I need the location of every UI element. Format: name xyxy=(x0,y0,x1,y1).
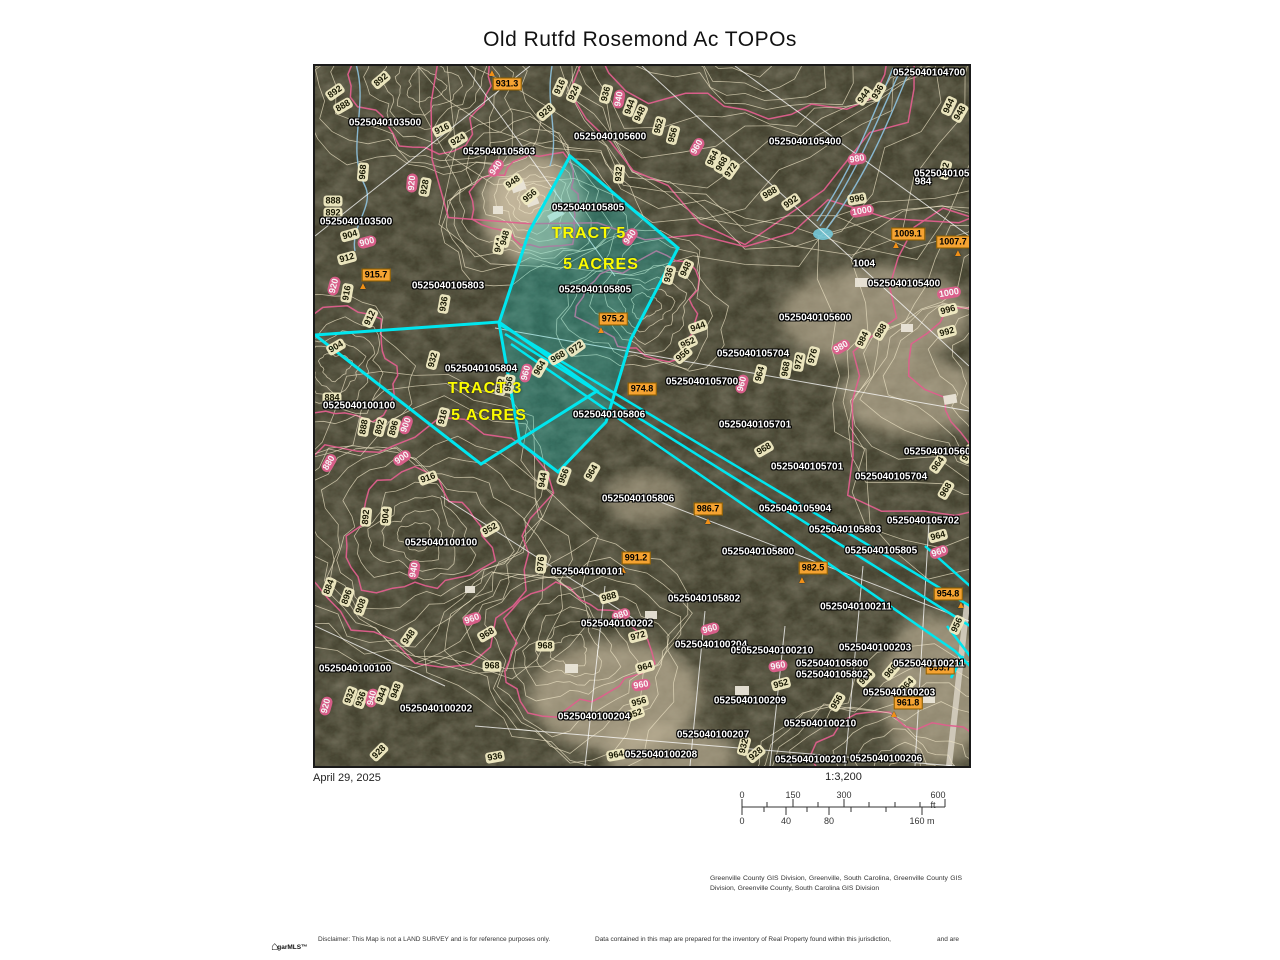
parcel-id-label: 0525040105701 xyxy=(719,420,791,431)
contour-label: 956 xyxy=(827,691,846,713)
parcel-id-label: 0525040105704 xyxy=(717,349,789,360)
contour-index-label: 980 xyxy=(847,152,868,166)
contour-label: 916 xyxy=(431,120,453,138)
contour-label: 956 xyxy=(665,124,681,145)
contour-label: 988 xyxy=(759,183,781,202)
spot-elevation-marker-icon: ▲ xyxy=(596,327,606,335)
contour-index-label: 960 xyxy=(687,136,706,158)
contour-label: 936 xyxy=(598,83,614,104)
contour-index-label: 880 xyxy=(319,452,338,474)
contour-index-label: 960 xyxy=(928,544,950,561)
spot-elevation-label: 915.7 xyxy=(362,269,391,282)
contour-label: 888 xyxy=(357,417,371,438)
disclaimer-part-3: and are xyxy=(937,936,959,943)
contour-label: 892 xyxy=(372,416,388,437)
contour-label: 948 xyxy=(388,680,405,702)
parcel-id-label: 0525040105702 xyxy=(887,516,959,527)
parcel-id-label: 0525040105803 xyxy=(809,525,881,536)
contour-label: 964 xyxy=(634,659,655,675)
parcel-id-label: 0525040100211 xyxy=(820,602,892,613)
contour-label: 916 xyxy=(417,470,439,487)
parcel-id-label: 0525040105600 xyxy=(779,313,851,324)
contour-label: 952 xyxy=(770,676,791,692)
parcel-id-label: 0525040105806 xyxy=(602,494,674,505)
scale-tick-label: 600 ft xyxy=(930,790,945,810)
contour-label: 936 xyxy=(485,750,506,764)
scale-tick-label: 160 m xyxy=(909,816,934,826)
parcel-id-label: 0525040105904 xyxy=(759,504,831,515)
contour-index-label: 960 xyxy=(461,611,483,628)
tract-label: TRACT 5 xyxy=(552,225,627,243)
contour-label: 956 xyxy=(556,465,573,487)
parcel-id-label: 0525040105802 xyxy=(668,594,740,605)
parcel-id-label: 0525040100209 xyxy=(714,696,786,707)
spot-elevation-marker-icon: ▲ xyxy=(487,70,497,78)
topo-report-page: Old Rutfd Rosemond Ac TOPOs 892892888916… xyxy=(0,0,1280,960)
parcel-id-label: 0525040105800 xyxy=(722,547,794,558)
contour-label: 988 xyxy=(871,320,890,342)
contour-label: 944 xyxy=(536,470,550,491)
contour-label: 948 xyxy=(399,626,419,648)
contour-label: 952 xyxy=(479,519,501,538)
parcel-id-label: 0525040100210 xyxy=(741,646,813,657)
contour-label: 996 xyxy=(937,302,958,318)
tract-label: TRACT 3 xyxy=(448,380,523,398)
parcel-id-label: 0525040104700 xyxy=(893,68,965,79)
mls-logo: ⌂ garMLS™ xyxy=(271,941,308,951)
tract-label: 5 ACRES xyxy=(451,407,527,425)
spot-elevation-marker-icon: ▲ xyxy=(797,577,807,585)
contour-label: 972 xyxy=(627,628,648,644)
map-date: April 29, 2025 xyxy=(313,772,381,784)
contour-label: 948 xyxy=(502,172,524,192)
contour-label: 932 xyxy=(425,349,441,370)
contour-label: 884 xyxy=(321,576,338,598)
contour-index-label: 1000 xyxy=(849,203,875,218)
scale-tick-label: 150 xyxy=(785,790,800,800)
parcel-id-label: 0525040105800 xyxy=(796,659,868,670)
scale-tick-label: 0 xyxy=(739,790,744,800)
contour-label: 984 xyxy=(854,328,872,350)
contour-label: 904 xyxy=(325,337,347,356)
parcel-id-label: 0525040100210 xyxy=(784,719,856,730)
contour-index-label: 940 xyxy=(486,157,506,179)
contour-index-label: 960 xyxy=(768,659,789,673)
parcel-id-label: 0525040100202 xyxy=(581,619,653,630)
contour-index-label: 940 xyxy=(407,560,421,581)
contour-label: 968 xyxy=(779,359,793,380)
contour-label: 928 xyxy=(535,102,557,123)
contour-index-label: 920 xyxy=(406,173,419,193)
contour-index-label: 960 xyxy=(699,621,720,637)
contour-label: 964 xyxy=(582,461,601,483)
parcel-id-label: 0525040105400 xyxy=(769,137,841,148)
contour-label: 932 xyxy=(613,164,626,184)
spot-elevation-label: 986.7 xyxy=(694,503,723,516)
contour-label: 948 xyxy=(677,258,695,280)
contour-label: 928 xyxy=(368,741,389,762)
contour-label: 976 xyxy=(535,554,548,574)
contour-label: 892 xyxy=(360,507,373,527)
parcel-id-label: 0525040100100 xyxy=(405,538,477,549)
parcel-id-label: 0525040105805 xyxy=(559,285,631,296)
tract-label: 5 ACRES xyxy=(563,256,639,274)
contour-label: 896 xyxy=(339,586,356,608)
scale-bar: 0150300600 ft 04080160 m xyxy=(740,790,952,834)
contour-label: 912 xyxy=(361,307,379,329)
spot-elevation-label: 1009.1 xyxy=(891,228,925,241)
contour-label: 948 xyxy=(497,227,513,248)
contour-label: 968 xyxy=(936,479,955,501)
contour-label: 976 xyxy=(805,345,821,366)
gis-attribution: Greenville County GIS Division, Greenvil… xyxy=(710,874,962,893)
parcel-id-label: 0525040100202 xyxy=(400,704,472,715)
contour-index-label: 920 xyxy=(318,695,334,716)
parcel-id-label: 0525040105700 xyxy=(666,377,738,388)
parcel-id-label: 0525040100207 xyxy=(677,730,749,741)
spot-elevation-marker-icon: ▲ xyxy=(889,711,899,719)
spot-elevation-marker-icon: ▲ xyxy=(953,250,963,258)
map-labels-layer: 8928928889169249409489289209688888929049… xyxy=(315,66,969,766)
scale-ratio: 1:3,200 xyxy=(742,771,945,783)
parcel-id-label: 0525040100201 xyxy=(775,755,847,766)
contour-label: 916 xyxy=(435,406,451,427)
contour-index-label: 980 xyxy=(830,337,852,356)
contour-label: 968 xyxy=(476,624,498,643)
spot-elevation-label: 975.2 xyxy=(599,313,628,326)
contour-label: 992 xyxy=(780,192,802,212)
contour-index-label: 960 xyxy=(631,678,652,692)
parcel-id-label: 0525040105804 xyxy=(445,364,517,375)
contour-index-label: 920 xyxy=(326,275,342,296)
parcel-id-label: 0525040105600 xyxy=(574,132,646,143)
contour-label: 924 xyxy=(565,82,583,104)
mls-logo-text: garMLS™ xyxy=(277,944,307,951)
contour-index-label: 900 xyxy=(391,448,413,468)
parcel-id-label: 0525040105701 xyxy=(771,462,843,473)
page-title: Old Rutfd Rosemond Ac TOPOs xyxy=(0,28,1280,52)
parcel-id-label: 0525040100100 xyxy=(319,664,391,675)
parcel-id-label: 0525040103500 xyxy=(320,217,392,228)
parcel-id-label: 0525040105400 xyxy=(868,279,940,290)
spot-elevation-marker-icon: ▲ xyxy=(358,283,368,291)
contour-label: 968 xyxy=(482,661,501,672)
contour-label: 968 xyxy=(753,439,775,458)
parcel-id-label: 0525040100100 xyxy=(323,401,395,412)
contour-label: 964 xyxy=(752,363,768,384)
parcel-id-label: 0525040105805 xyxy=(552,203,624,214)
spot-elevation-marker-icon: ▲ xyxy=(703,518,713,526)
parcel-id-label: 0525040100204 xyxy=(558,712,630,723)
contour-label: 992 xyxy=(936,324,957,340)
contour-label: 956 xyxy=(519,186,541,207)
contour-label: 904 xyxy=(380,506,393,526)
contour-label: 964 xyxy=(927,528,948,544)
parcel-id-label: 0525040100203 xyxy=(839,643,911,654)
spot-elevation-label: 991.2 xyxy=(622,552,651,565)
parcel-id-label: 0525040105802 xyxy=(796,670,868,681)
parcel-id-label: 0525040105704 xyxy=(855,472,927,483)
disclaimer-part-2: Data contained in this map are prepared … xyxy=(595,936,891,943)
scale-tick-label: 0 xyxy=(739,816,744,826)
contour-label: 936 xyxy=(437,294,451,315)
scale-tick-label: 40 xyxy=(781,816,791,826)
spot-elevation-marker-icon: ▲ xyxy=(891,242,901,250)
parcel-id-label: 0525040105600 xyxy=(904,447,971,458)
parcel-id-label: 0525040100101 xyxy=(551,567,623,578)
spot-elevation-label: 974.8 xyxy=(628,383,657,396)
contour-label: 936 xyxy=(661,264,677,285)
spot-elevation-label: 982.5 xyxy=(799,562,828,575)
contour-label: 928 xyxy=(418,177,432,198)
contour-label: 944 xyxy=(687,319,709,336)
contour-label: 964 xyxy=(530,357,549,379)
parcel-id-label: 0525040100211 xyxy=(893,659,965,670)
parcel-id-label: 984 xyxy=(915,177,932,188)
contour-label: 968 xyxy=(357,162,370,182)
spot-elevation-marker-icon: ▲ xyxy=(956,602,966,610)
parcel-id-label: 0525040105803 xyxy=(463,147,535,158)
contour-label: 988 xyxy=(598,589,619,605)
parcel-id-label: 0525040100208 xyxy=(625,750,697,761)
contour-label: 912 xyxy=(336,250,357,266)
parcel-id-label: 0525040100203 xyxy=(863,688,935,699)
parcel-id-label: 0525040100206 xyxy=(850,754,922,765)
parcel-id-label: 0525040105806 xyxy=(573,410,645,421)
parcel-id-label: 0525040105803 xyxy=(412,281,484,292)
contour-label: 972 xyxy=(792,352,806,373)
parcel-id-label: 0525040103500 xyxy=(349,118,421,129)
contour-label: 908 xyxy=(353,595,370,617)
contour-label: 972 xyxy=(565,338,587,358)
contour-label: 964 xyxy=(606,748,627,762)
parcel-id-label: 1004 xyxy=(853,259,875,270)
contour-index-label: 900 xyxy=(398,414,415,436)
disclaimer-part-1: Disclaimer: This Map is not a LAND SURVE… xyxy=(318,936,550,943)
contour-label: 888 xyxy=(332,96,354,115)
contour-label: 952 xyxy=(651,115,667,136)
parcel-id-label: 0525040105805 xyxy=(845,546,917,557)
topo-map: 8928928889169249409489289209688888929049… xyxy=(313,64,971,768)
contour-label: 892 xyxy=(370,70,392,91)
spot-elevation-label: 954.8 xyxy=(934,588,963,601)
scale-tick-label: 80 xyxy=(824,816,834,826)
spot-elevation-label: 1007.7 xyxy=(936,236,970,249)
contour-label: 916 xyxy=(340,283,354,304)
scale-tick-label: 300 xyxy=(836,790,851,800)
contour-label: 888 xyxy=(323,196,342,207)
contour-label: 956 xyxy=(948,614,966,636)
contour-label: 968 xyxy=(535,641,554,652)
spot-elevation-label: 931.3 xyxy=(493,78,522,91)
